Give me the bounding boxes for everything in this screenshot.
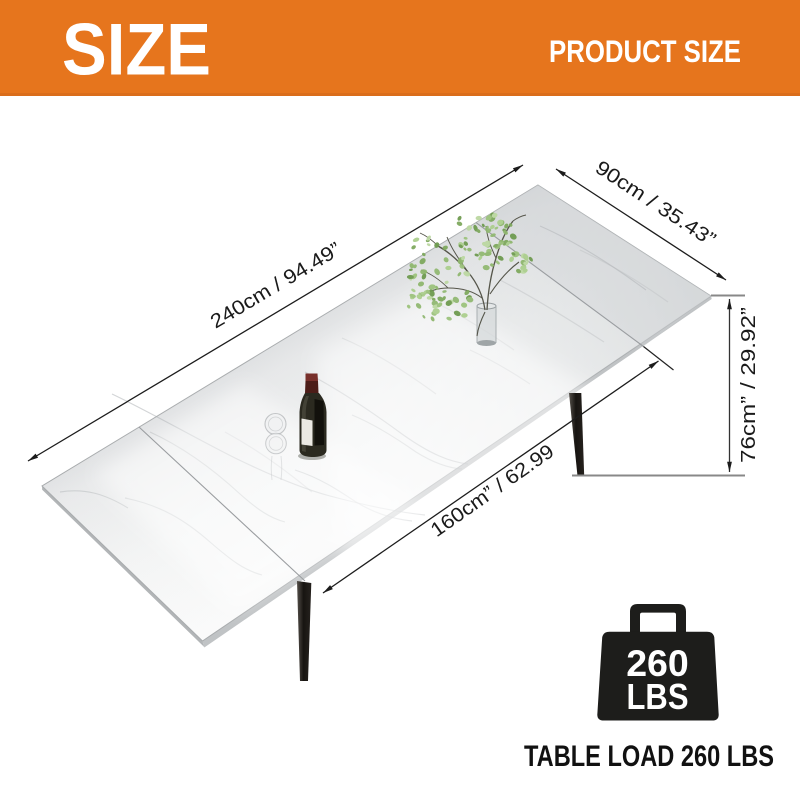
svg-text:TABLE LOAD 260 LBS: TABLE LOAD 260 LBS	[524, 740, 774, 773]
svg-text:LBS: LBS	[627, 676, 689, 717]
svg-text:76cm” / 29.92”: 76cm” / 29.92”	[738, 307, 760, 463]
svg-text:SIZE: SIZE	[62, 10, 211, 91]
svg-text:PRODUCT SIZE: PRODUCT SIZE	[549, 33, 741, 69]
